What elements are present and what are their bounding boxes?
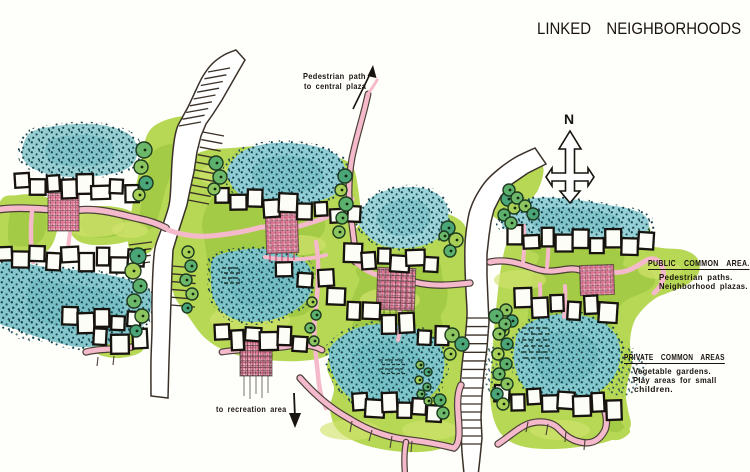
svg-text:N: N [564, 111, 574, 127]
